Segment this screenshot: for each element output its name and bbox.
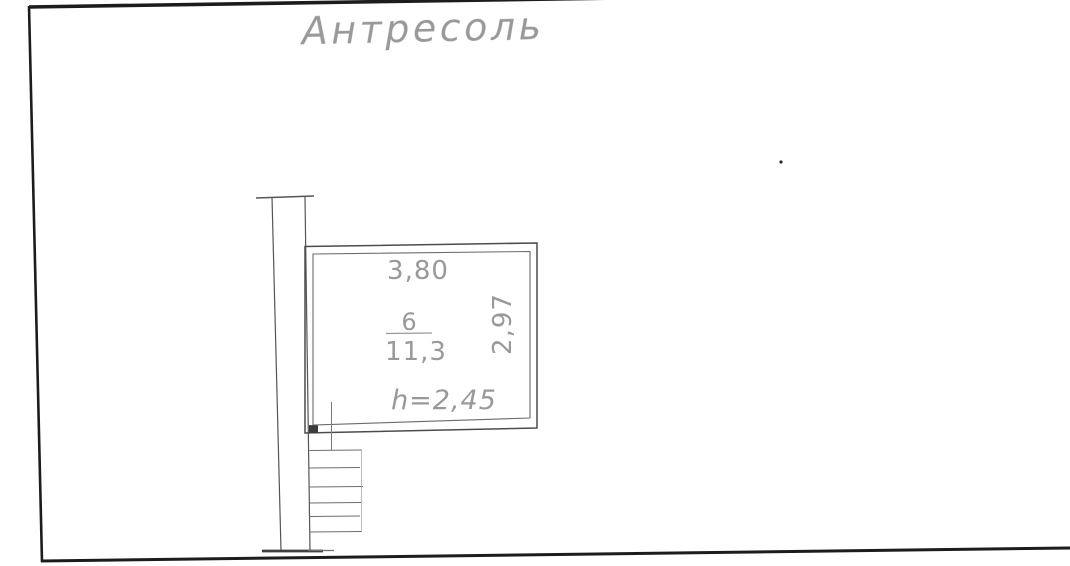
scan-speck xyxy=(779,160,782,163)
room-width-label: 3,80 xyxy=(387,256,449,286)
stair-tread xyxy=(310,450,363,451)
stair-tread xyxy=(310,487,364,488)
staircase xyxy=(308,450,363,551)
plan-title: Антресоль xyxy=(298,4,545,53)
room-depth-label: 2,97 xyxy=(488,293,518,355)
page-frame xyxy=(29,0,1070,562)
frame-left-border xyxy=(29,6,42,562)
wall-hatch-mark xyxy=(309,425,318,433)
plan-labels: Антресоль 3,80 6 11,3 2,97 h=2,45 xyxy=(298,4,545,416)
room-number-label: 6 xyxy=(401,308,416,336)
stair-tread xyxy=(310,516,361,517)
stair-tread xyxy=(310,532,363,533)
frame-bottom-border xyxy=(41,548,1070,561)
floor-plan-drawing: Антресоль 3,80 6 11,3 2,97 h=2,45 xyxy=(0,0,1070,566)
ceiling-height-label: h=2,45 xyxy=(391,385,497,416)
scanned-floor-plan-page: Антресоль 3,80 6 11,3 2,97 h=2,45 xyxy=(0,0,1070,566)
room-number-divider xyxy=(386,333,432,334)
wall-outer-line xyxy=(272,197,281,551)
room-area-label: 11,3 xyxy=(385,337,447,367)
stair-tread xyxy=(310,468,361,469)
stair-tread xyxy=(310,503,362,504)
